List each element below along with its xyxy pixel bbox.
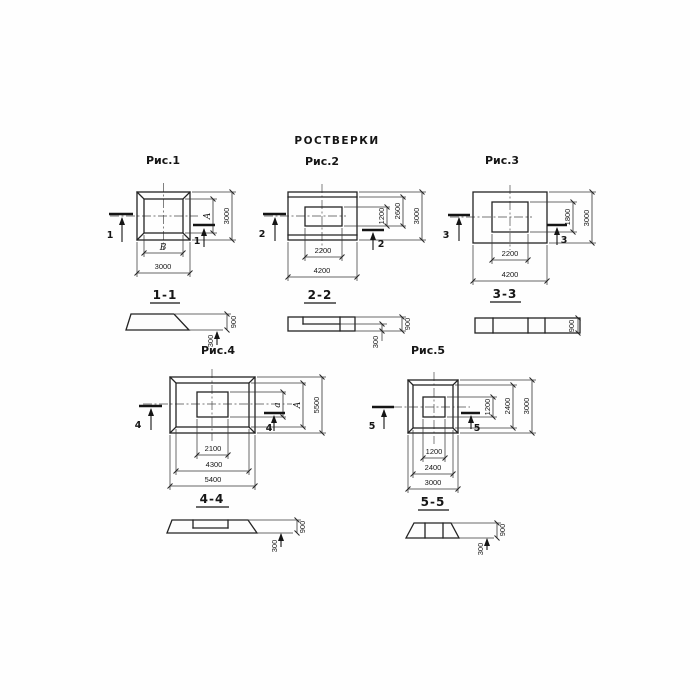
fig1-cut-label-right: 1	[194, 236, 201, 247]
fig1-dim-inner-width: В	[159, 243, 167, 253]
fig4-dim-mid-width: 4300	[206, 460, 223, 469]
fig3-dim-outer-height: 3000	[582, 210, 591, 227]
fig5-dim-outer-width: 3000	[425, 478, 442, 487]
fig4-dim-mid-height: А	[293, 401, 303, 409]
fig2-cut-mark-left: 2	[259, 214, 286, 241]
fig3-dim-inner-width: 2200	[502, 249, 519, 258]
fig3-plan	[450, 185, 547, 250]
fig1-plan	[110, 183, 198, 250]
fig2-dim-inner-width: 2200	[315, 246, 332, 255]
fig5-section-view: 5-5 900 300	[406, 495, 507, 555]
fig5-dim-inner-height: 1200	[483, 399, 492, 416]
fig1-dim-inner-height: А	[203, 212, 213, 220]
figure-2: Рис.2 1200 2600 3000 2200	[259, 155, 426, 348]
figure-5: Рис.5 1200 2400 3000	[369, 344, 536, 555]
fig4-cut-label-right: 4	[266, 423, 273, 434]
fig1-dimensions: А 3000 В 3000	[137, 192, 236, 277]
fig3-cut-mark-left: 3	[443, 215, 470, 241]
fig4-cut-mark-left: 4	[135, 406, 162, 431]
fig2-section-view: 2-2 900 300	[288, 288, 412, 348]
fig5-dim-mid-height: 2400	[503, 398, 512, 415]
fig3-dim-outer-width: 4200	[502, 270, 519, 279]
sheet-title: РОСТВЕРКИ	[294, 135, 379, 147]
fig5-dim-outer-height: 3000	[522, 398, 531, 415]
figure-4: Рис.4 а А 5500	[135, 344, 326, 552]
fig2-dim-inner-height: 1200	[377, 208, 386, 225]
fig2-dim-outer-height: 3000	[412, 208, 421, 225]
fig2-section-label: 2-2	[308, 288, 333, 302]
fig4-cut-label-left: 4	[135, 420, 142, 431]
fig1-cut-mark-right: 1	[193, 225, 215, 247]
fig3-cut-label-left: 3	[443, 230, 450, 241]
fig1-cut-mark-left: 1	[107, 214, 133, 242]
fig4-cut-mark-right: 4	[264, 413, 285, 434]
fig4-section-step: 300	[270, 540, 279, 553]
fig3-section-view: 3-3 900	[475, 287, 580, 333]
fig5-cut-mark-left: 5	[369, 407, 394, 432]
fig5-cut-label-left: 5	[369, 421, 376, 432]
fig4-section-label: 4-4	[200, 492, 225, 506]
fig1-section-view: 1-1 900 300	[126, 288, 238, 347]
fig4-dim-outer-width: 5400	[205, 475, 222, 484]
fig4-dim-inner-width: 2100	[205, 444, 222, 453]
fig3-title: Рис.3	[485, 154, 519, 167]
fig2-cut-label-right: 2	[378, 239, 385, 250]
fig5-section-label: 5-5	[421, 495, 446, 509]
fig5-dim-inner-width: 1200	[426, 447, 443, 456]
fig5-cut-mark-right: 5	[461, 413, 480, 434]
fig3-cut-label-right: 3	[561, 235, 568, 246]
fig5-section-step: 300	[476, 543, 485, 556]
fig2-title: Рис.2	[305, 155, 339, 168]
fig3-section-height: 900	[567, 320, 576, 333]
fig5-title: Рис.5	[411, 344, 445, 357]
fig1-section-label: 1-1	[153, 288, 178, 302]
fig2-cut-label-left: 2	[259, 229, 266, 240]
figure-3: Рис.3 1800 3000 2200 4200	[443, 154, 596, 333]
fig2-section-height: 900	[403, 318, 412, 331]
fig1-dim-outer-height: 3000	[222, 208, 231, 225]
fig5-dim-mid-width: 2400	[425, 463, 442, 472]
fig4-section-view: 4-4 900 300	[167, 492, 307, 552]
fig2-section-step: 300	[371, 336, 380, 349]
fig1-cut-label-left: 1	[107, 230, 114, 241]
drawing-canvas: РОСТВЕРКИ Рис.1 А 3000 В	[0, 0, 700, 700]
fig2-plan	[264, 184, 357, 251]
fig4-dim-outer-height: 5500	[312, 397, 321, 414]
fig1-dim-outer-width: 3000	[155, 262, 172, 271]
figure-1: Рис.1 А 3000 В 3000	[107, 154, 238, 347]
fig4-dim-inner-height: а	[273, 402, 283, 407]
fig5-section-height: 900	[498, 524, 507, 537]
fig1-title: Рис.1	[146, 154, 180, 167]
fig3-section-label: 3-3	[493, 287, 518, 301]
fig4-section-height: 900	[298, 521, 307, 534]
fig5-cut-label-right: 5	[474, 423, 481, 434]
fig1-section-height: 900	[229, 316, 238, 329]
fig2-dim-outer-width: 4200	[314, 266, 331, 275]
fig2-dim-mid-height: 2600	[393, 203, 402, 220]
fig4-title: Рис.4	[201, 344, 235, 357]
grillage-drawing: РОСТВЕРКИ Рис.1 А 3000 В	[0, 0, 700, 700]
fig3-dim-inner-height: 1800	[563, 209, 572, 226]
